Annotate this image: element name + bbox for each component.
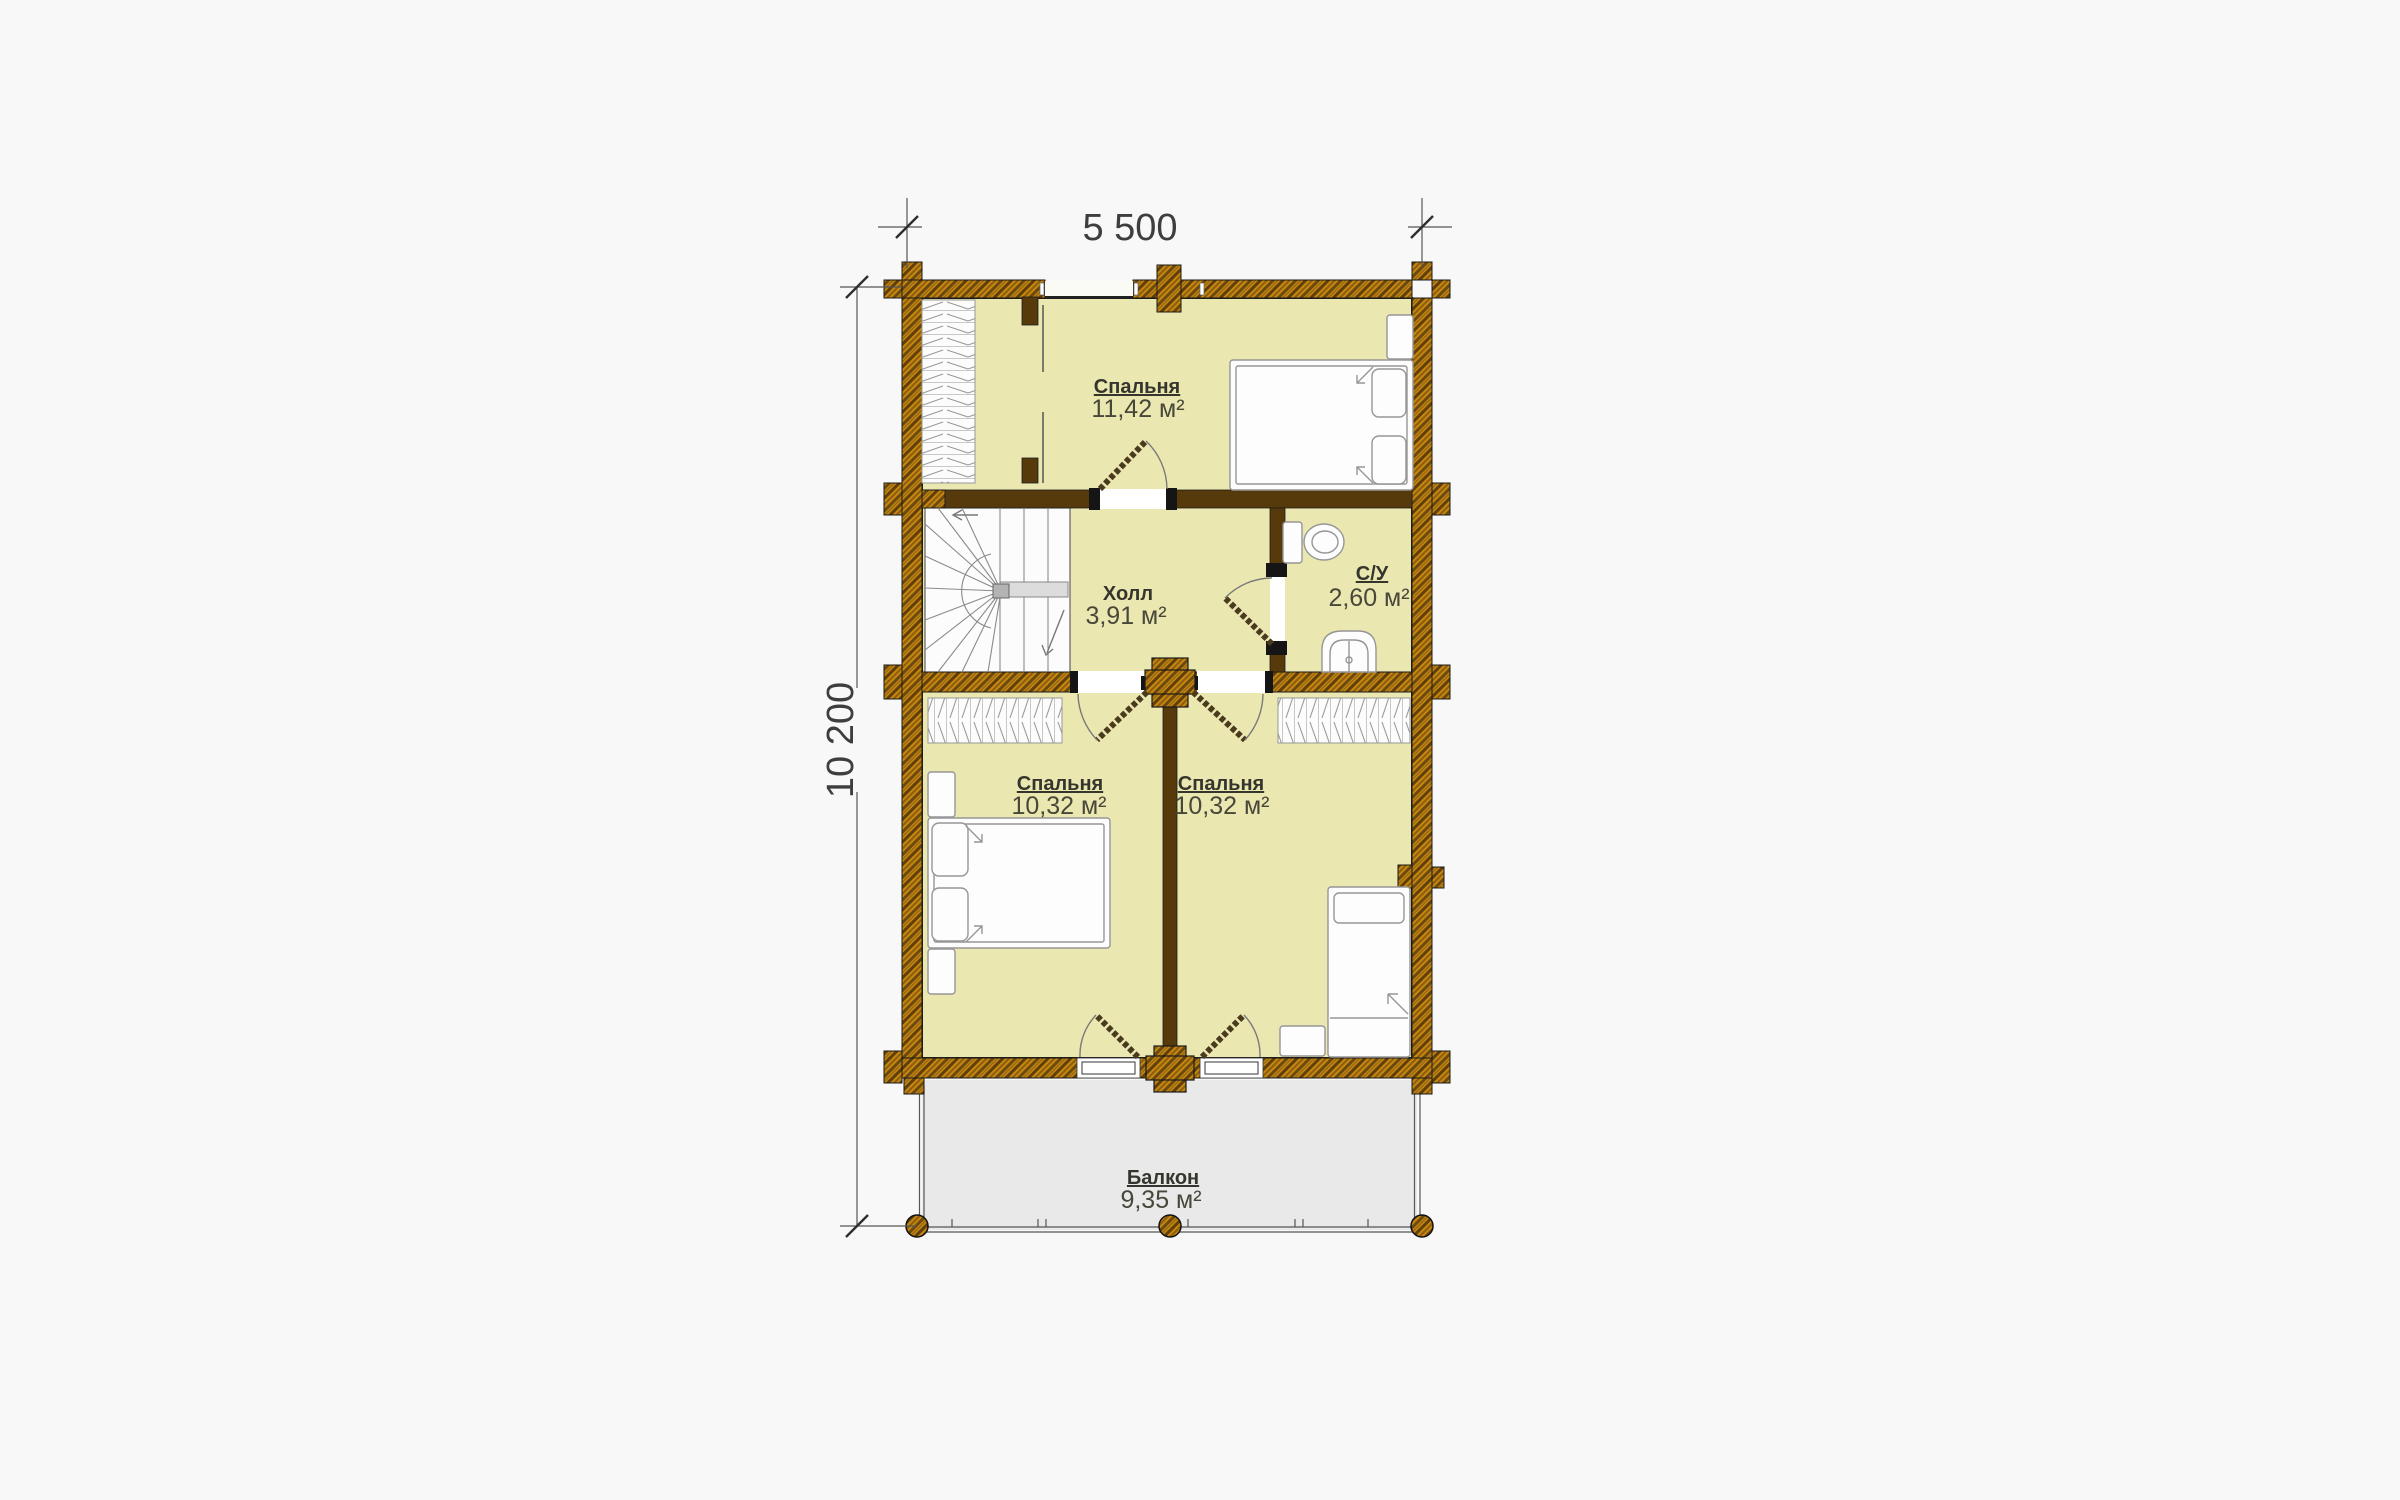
room-area: 10,32 м² xyxy=(1174,792,1269,820)
toilet-icon xyxy=(1283,522,1344,563)
room-area: 9,35 м² xyxy=(1120,1186,1201,1214)
wall-pier-stub xyxy=(1432,867,1444,888)
log-end xyxy=(884,280,902,298)
log-end xyxy=(902,262,922,280)
stair-landing xyxy=(1000,582,1068,597)
bathroom-wall-lower xyxy=(1270,653,1285,672)
wall-top-log-joint xyxy=(1157,265,1181,312)
balcony-post-icon xyxy=(1411,1215,1433,1237)
closet-icon xyxy=(922,300,975,483)
log-end xyxy=(1412,1078,1432,1094)
closet-stub-top xyxy=(1022,297,1038,325)
room-bedroom-right-label: Спальня 10,32 м² xyxy=(1174,773,1269,820)
pillow xyxy=(932,888,968,941)
log-end xyxy=(1432,1051,1450,1083)
floor-plan-page: 5 500 10 200 Спальня 11,42 м² Холл 3,91 … xyxy=(0,0,2400,1500)
bench xyxy=(1280,1026,1325,1056)
wardrobe-icon-right xyxy=(1278,698,1410,743)
balcony-post-icon xyxy=(1159,1215,1181,1237)
log-end xyxy=(1432,483,1450,515)
room-area: 3,91 м² xyxy=(1085,602,1166,630)
wall-left xyxy=(902,298,922,1058)
sink-icon xyxy=(1322,631,1376,673)
log-end xyxy=(884,483,902,515)
wardrobe-icon-left xyxy=(928,698,1062,743)
nightstand xyxy=(928,949,955,994)
dimension-width-label: 5 500 xyxy=(1082,207,1177,249)
pillow xyxy=(1372,436,1406,484)
log-end xyxy=(1432,280,1450,298)
room-balcony-label: Балкон 9,35 м² xyxy=(1120,1167,1201,1214)
wall2-right-segment xyxy=(1175,490,1412,508)
room-bedroom-left-label: Спальня 10,32 м² xyxy=(1011,773,1106,820)
wall-pier xyxy=(1398,865,1412,888)
pillow xyxy=(932,823,968,876)
dimension-height-label: 10 200 xyxy=(820,682,862,798)
log-end xyxy=(884,665,902,699)
stair-newel xyxy=(993,584,1009,598)
pillow xyxy=(1372,369,1406,417)
wall-top-right xyxy=(1181,280,1412,298)
log-end xyxy=(1432,665,1450,699)
room-area: 2,60 м² xyxy=(1328,584,1409,612)
floor-plan-svg: 5 500 10 200 Спальня 11,42 м² Холл 3,91 … xyxy=(0,0,2400,1500)
room-area: 11,42 м² xyxy=(1091,395,1184,423)
room-name: С/У xyxy=(1356,563,1389,585)
log-end xyxy=(904,1078,924,1094)
log-end xyxy=(884,1051,902,1083)
wall2-left-segment xyxy=(945,490,1092,508)
wall-middle-upper-left xyxy=(922,490,945,508)
center-post-cross-arm xyxy=(1145,670,1195,694)
wall-right xyxy=(1412,298,1432,1058)
bottom-post-cross-arm xyxy=(1146,1056,1194,1080)
room-bedroom-top-label: Спальня 11,42 м² xyxy=(1091,376,1184,423)
nightstand xyxy=(1387,315,1413,359)
room-area: 10,32 м² xyxy=(1011,792,1106,820)
nightstand xyxy=(928,772,955,817)
wall-top-left xyxy=(902,280,1045,298)
bedrooms-divider-wall xyxy=(1163,707,1177,1058)
closet-stub-bottom xyxy=(1022,458,1038,483)
